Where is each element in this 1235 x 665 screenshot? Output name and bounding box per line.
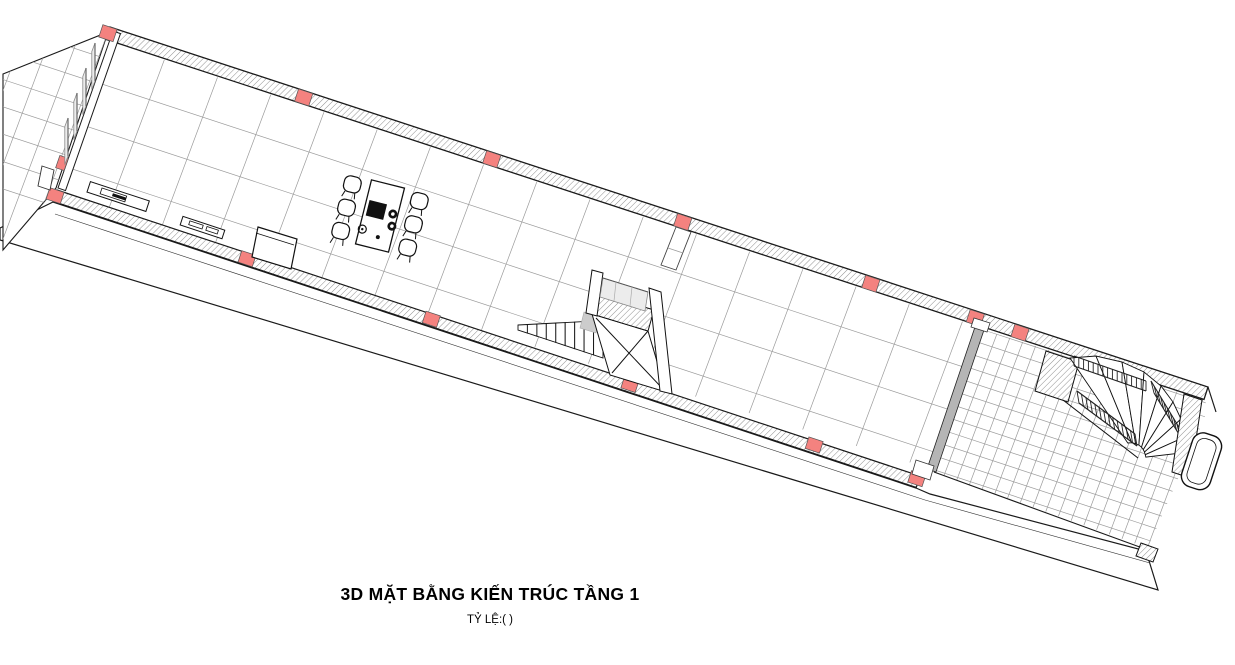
drawing-title: 3D MẶT BẰNG KIẾN TRÚC TẦNG 1 <box>240 584 740 605</box>
architectural-drawing-page: 3D MẶT BẰNG KIẾN TRÚC TẦNG 1 TỶ LỆ:( ) <box>0 0 1235 665</box>
floor-plan-3d-view <box>0 0 1235 665</box>
drawing-caption: 3D MẶT BẰNG KIẾN TRÚC TẦNG 1 TỶ LỆ:( ) <box>240 584 740 626</box>
drawing-scale: TỶ LỆ:( ) <box>240 614 740 626</box>
